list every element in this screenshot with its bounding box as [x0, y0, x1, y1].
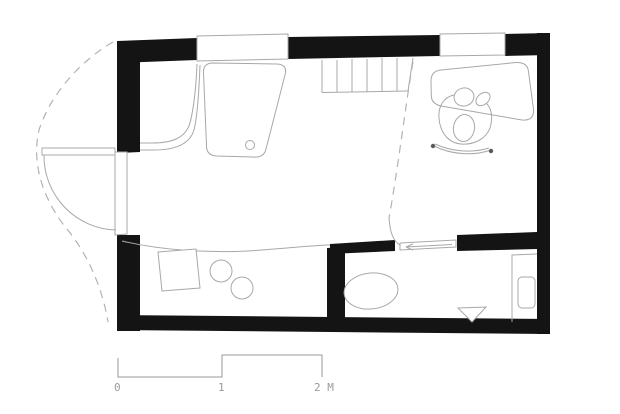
scale-bar-line [118, 355, 322, 377]
door-leaf [42, 148, 115, 155]
desk [431, 62, 534, 120]
kitchen-table [158, 249, 200, 291]
wall-top-middle [288, 35, 440, 59]
window-top-left [197, 34, 288, 61]
toilet [342, 270, 399, 311]
floor-plan-drawing: 0 1 2 M [0, 0, 620, 414]
chair-end-dot [489, 149, 493, 153]
entry-door [42, 148, 127, 235]
wall-bath-divider [327, 247, 345, 321]
wall-left-upper [117, 41, 140, 153]
wall-bath-top-right [457, 232, 537, 251]
chair-end-dot [431, 144, 435, 148]
floor-plan-canvas: 0 1 2 M [0, 0, 620, 414]
stool [231, 277, 253, 299]
stairs [322, 58, 413, 93]
headroom-line [389, 62, 413, 245]
wall-right [537, 33, 550, 334]
bench [140, 64, 200, 150]
window-top-right [440, 33, 505, 56]
stool [210, 260, 232, 282]
scale-label-0: 0 [114, 381, 121, 394]
person-lap [452, 113, 477, 143]
scale-bar: 0 1 2 M [114, 355, 334, 394]
bed-unit [203, 63, 285, 157]
stools [210, 260, 253, 299]
loft-edge [122, 241, 330, 252]
washbasin [512, 254, 537, 322]
door-swing-arc [44, 155, 116, 230]
washbasin-bowl [518, 277, 535, 308]
stairs-base-line [322, 91, 408, 93]
door-frame [115, 152, 127, 235]
washbasin-counter [512, 254, 537, 322]
scale-label-2m: 2 M [314, 381, 334, 394]
sliding-door [400, 240, 456, 250]
scale-label-1: 1 [218, 381, 225, 394]
